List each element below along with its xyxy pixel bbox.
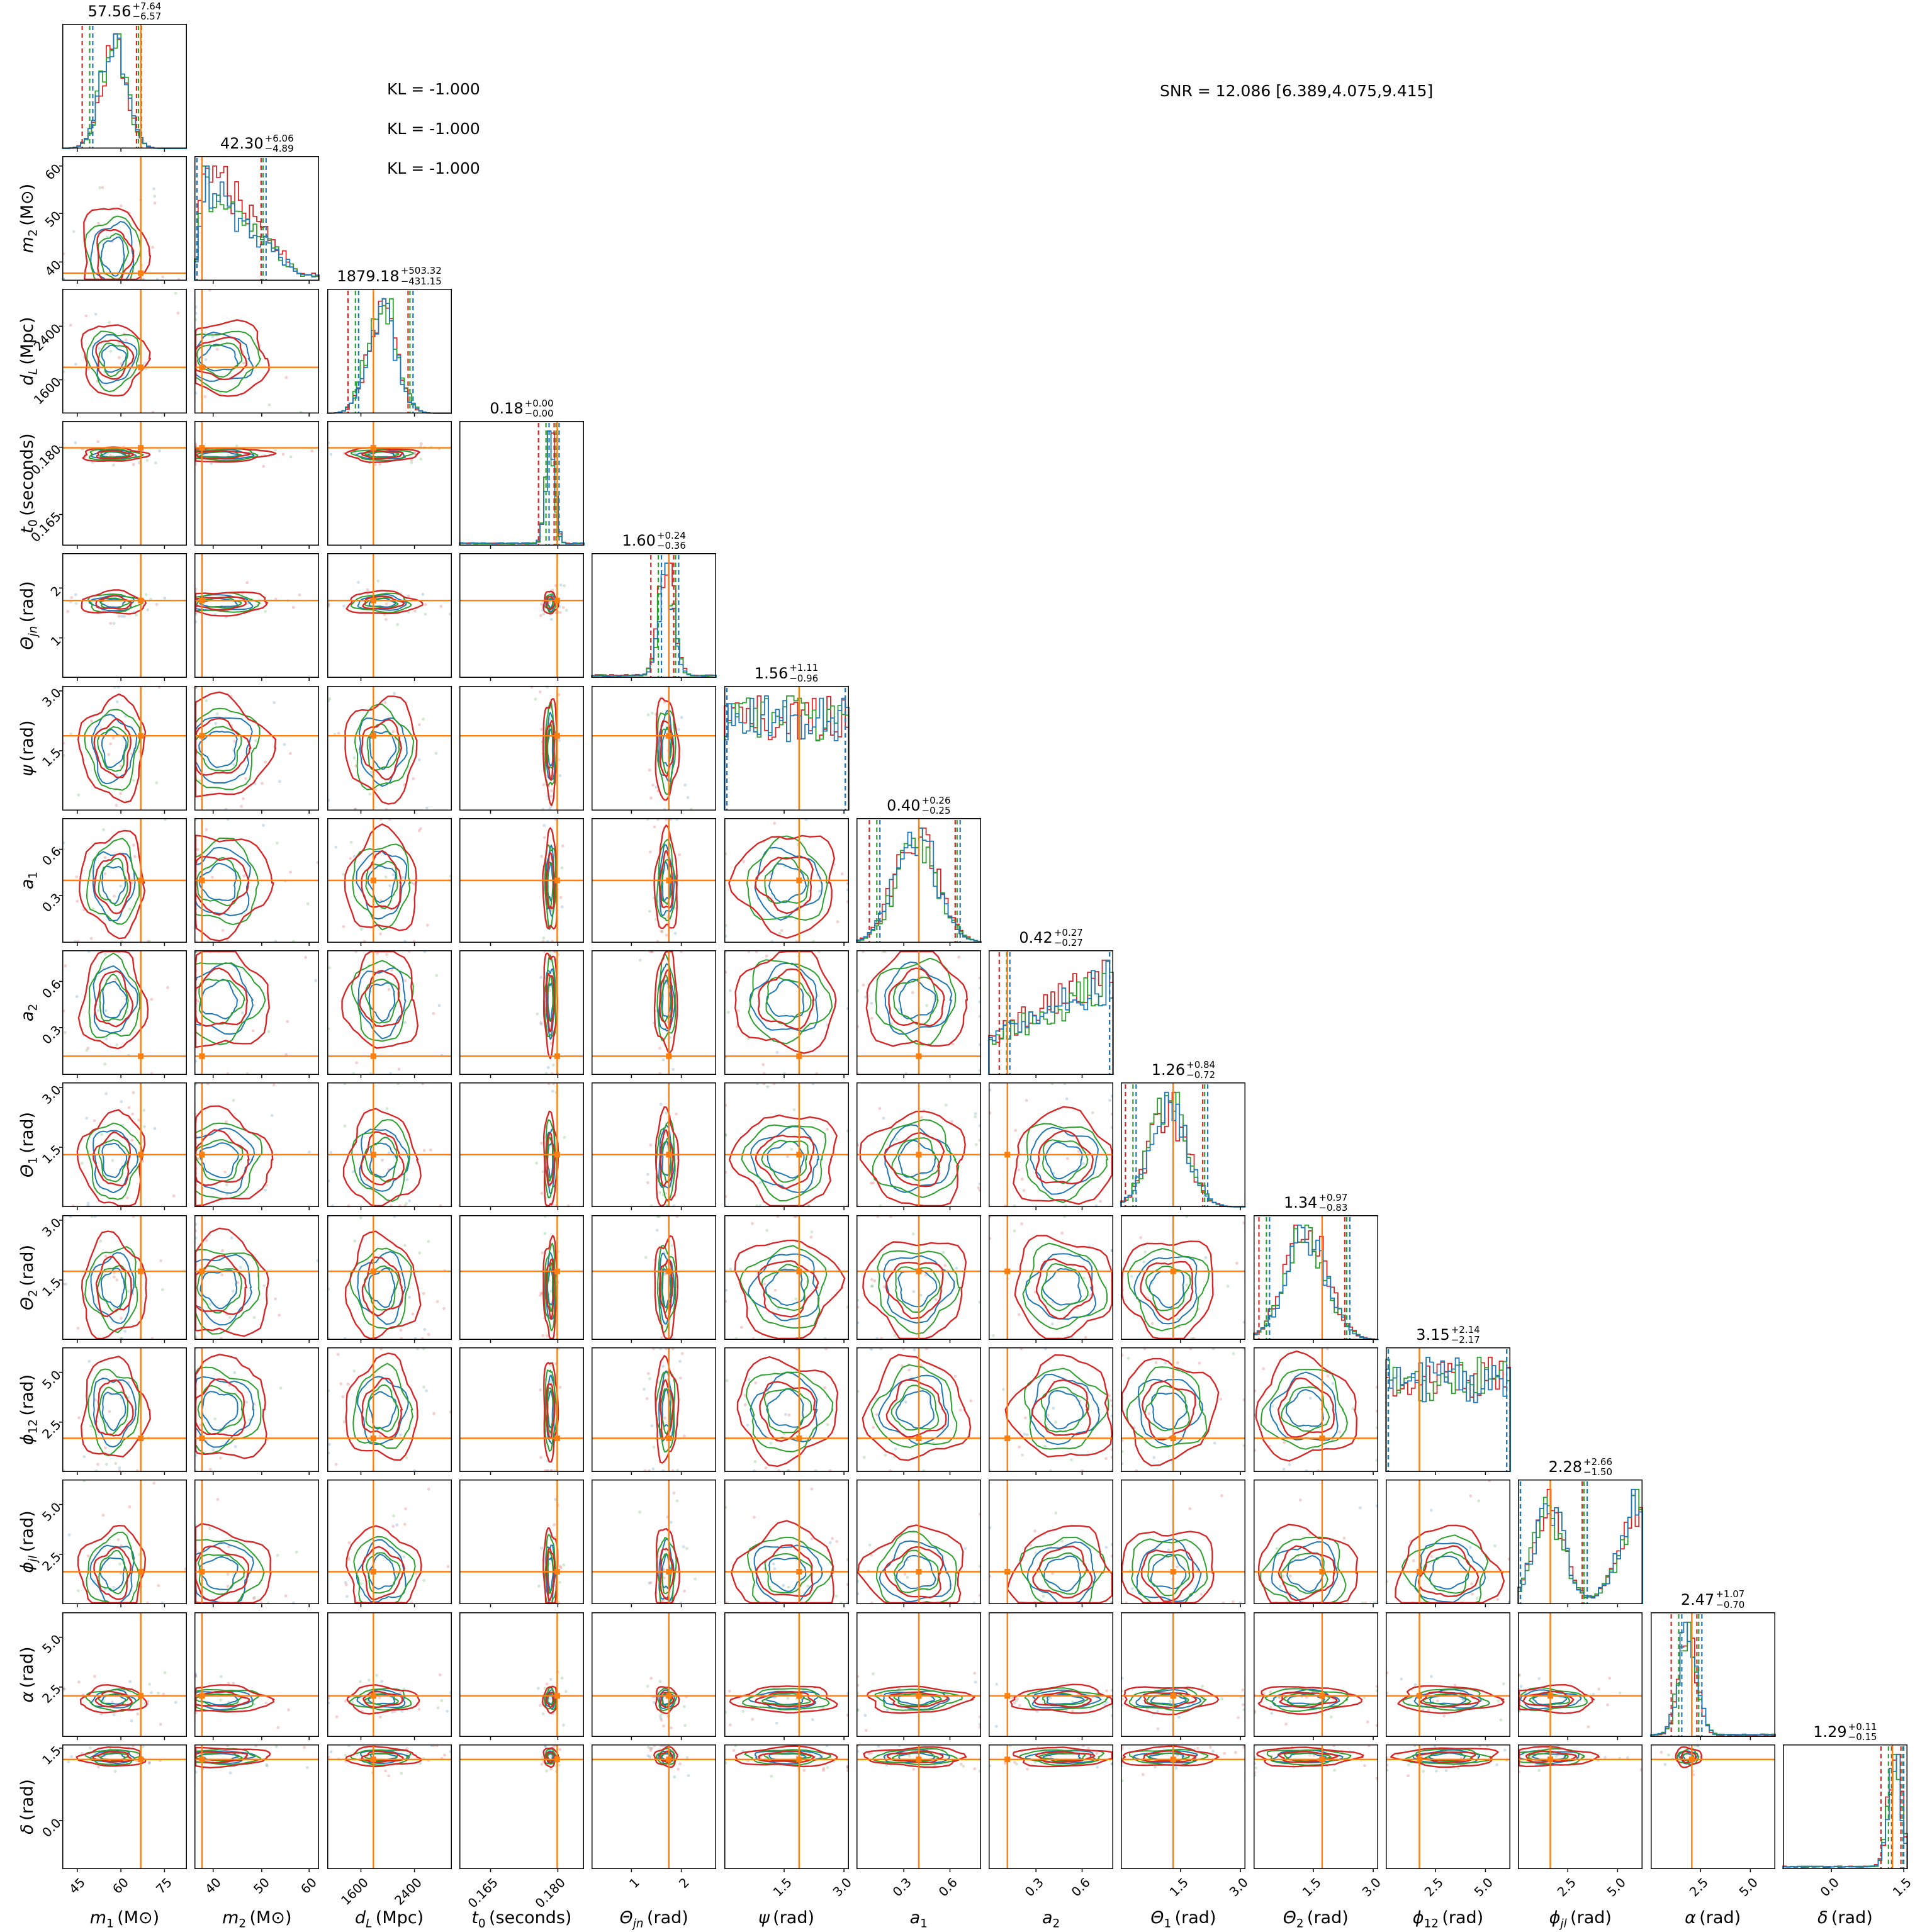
diag-panel-alpha bbox=[1651, 1612, 1775, 1737]
panel-theta_2-vs-m1 bbox=[62, 1215, 187, 1340]
panel-a2-vs-dL bbox=[327, 950, 452, 1075]
panel-alpha-vs-m1 bbox=[62, 1612, 187, 1737]
panel-phi_jl-vs-dL bbox=[327, 1480, 452, 1604]
panel-phi_12-vs-theta_1 bbox=[1121, 1347, 1245, 1472]
panel-psi-vs-dL bbox=[327, 686, 452, 811]
diag-title-phi_jl: 2.28+2.66−1.50 bbox=[1493, 1454, 1668, 1478]
panel-delta-vs-dL bbox=[327, 1744, 452, 1869]
panel-phi_12-vs-a1 bbox=[856, 1347, 981, 1472]
panel-theta_2-vs-theta_jn bbox=[592, 1215, 716, 1340]
panel-delta-vs-m2 bbox=[194, 1744, 319, 1869]
panel-theta_jn-vs-dL bbox=[327, 553, 452, 678]
panel-t0-vs-dL bbox=[327, 421, 452, 546]
panel-t0-vs-m2 bbox=[194, 421, 319, 546]
panel-alpha-vs-t0 bbox=[459, 1612, 584, 1737]
panel-theta_1-vs-a1 bbox=[856, 1082, 981, 1207]
y-axis-label-m2: m2 (M⊙) bbox=[17, 155, 38, 281]
panel-alpha-vs-a2 bbox=[989, 1612, 1113, 1737]
panel-theta_1-vs-theta_jn bbox=[592, 1082, 716, 1207]
panel-phi_jl-vs-a1 bbox=[856, 1480, 981, 1604]
panel-delta-vs-m1 bbox=[62, 1744, 187, 1869]
panel-alpha-vs-psi bbox=[724, 1612, 849, 1737]
panel-phi_jl-vs-a2 bbox=[989, 1480, 1113, 1604]
panel-theta_1-vs-m2 bbox=[194, 1082, 319, 1207]
diag-title-psi: 1.56+1.11−0.96 bbox=[699, 661, 874, 685]
y-axis-label-phi_12: ϕ12 (rad) bbox=[17, 1347, 38, 1473]
diag-panel-a2 bbox=[989, 950, 1113, 1075]
panel-alpha-vs-dL bbox=[327, 1612, 452, 1737]
panel-theta_2-vs-a1 bbox=[856, 1215, 981, 1340]
panel-theta_jn-vs-t0 bbox=[459, 553, 584, 678]
panel-alpha-vs-a1 bbox=[856, 1612, 981, 1737]
panel-phi_12-vs-m1 bbox=[62, 1347, 187, 1472]
panel-delta-vs-theta_2 bbox=[1254, 1744, 1378, 1869]
panel-dL-vs-m1 bbox=[62, 289, 187, 413]
panel-phi_jl-vs-m2 bbox=[194, 1480, 319, 1604]
panel-theta_jn-vs-m2 bbox=[194, 553, 319, 678]
panel-a2-vs-m2 bbox=[194, 950, 319, 1075]
panel-a1-vs-m2 bbox=[194, 818, 319, 943]
panel-theta_1-vs-dL bbox=[327, 1082, 452, 1207]
panel-m2-vs-m1 bbox=[62, 156, 187, 281]
panel-theta_2-vs-psi bbox=[724, 1215, 849, 1340]
diag-panel-theta_2 bbox=[1254, 1215, 1378, 1340]
panel-phi_jl-vs-theta_1 bbox=[1121, 1480, 1245, 1604]
panel-theta_1-vs-t0 bbox=[459, 1082, 584, 1207]
panel-phi_12-vs-theta_2 bbox=[1254, 1347, 1378, 1472]
panel-a1-vs-theta_jn bbox=[592, 818, 716, 943]
y-axis-label-theta_2: Θ2 (rad) bbox=[17, 1215, 38, 1340]
panel-a1-vs-dL bbox=[327, 818, 452, 943]
kl-annotation-2: KL = -1.000 bbox=[387, 120, 480, 138]
panel-phi_12-vs-a2 bbox=[989, 1347, 1113, 1472]
diag-title-theta_2: 1.34+0.97−0.83 bbox=[1228, 1190, 1403, 1214]
panel-phi_12-vs-dL bbox=[327, 1347, 452, 1472]
panel-alpha-vs-m2 bbox=[194, 1612, 319, 1737]
panel-t0-vs-m1 bbox=[62, 421, 187, 546]
diag-title-theta_1: 1.26+0.84−0.72 bbox=[1096, 1057, 1271, 1081]
panel-psi-vs-m2 bbox=[194, 686, 319, 811]
diag-panel-a1 bbox=[856, 818, 981, 943]
diag-title-a1: 0.40+0.26−0.25 bbox=[831, 793, 1006, 817]
y-axis-label-a2: a2 bbox=[17, 950, 38, 1076]
diag-panel-delta bbox=[1783, 1744, 1907, 1869]
panel-phi_12-vs-m2 bbox=[194, 1347, 319, 1472]
kl-annotation-3: KL = -1.000 bbox=[387, 159, 480, 177]
diag-title-dL: 1879.18+503.32−431.15 bbox=[302, 264, 477, 288]
panel-phi_jl-vs-theta_jn bbox=[592, 1480, 716, 1604]
panel-delta-vs-a1 bbox=[856, 1744, 981, 1869]
panel-delta-vs-theta_1 bbox=[1121, 1744, 1245, 1869]
panel-phi_jl-vs-m1 bbox=[62, 1480, 187, 1604]
panel-alpha-vs-theta_1 bbox=[1121, 1612, 1245, 1737]
y-axis-label-theta_1: Θ1 (rad) bbox=[17, 1082, 38, 1208]
diag-panel-phi_12 bbox=[1386, 1347, 1510, 1472]
panel-delta-vs-t0 bbox=[459, 1744, 584, 1869]
diag-panel-t0 bbox=[459, 421, 584, 546]
diag-panel-m1 bbox=[62, 24, 187, 149]
diag-panel-theta_1 bbox=[1121, 1082, 1245, 1207]
y-axis-label-a1: a1 bbox=[17, 817, 38, 943]
snr-annotation: SNR = 12.086 [6.389,4.075,9.415] bbox=[1160, 82, 1433, 100]
panel-theta_2-vs-m2 bbox=[194, 1215, 319, 1340]
panel-a1-vs-t0 bbox=[459, 818, 584, 943]
diag-title-alpha: 2.47+1.07−0.70 bbox=[1626, 1587, 1800, 1611]
panel-phi_jl-vs-phi_12 bbox=[1386, 1480, 1510, 1604]
panel-a1-vs-m1 bbox=[62, 818, 187, 943]
panel-theta_2-vs-t0 bbox=[459, 1215, 584, 1340]
panel-psi-vs-t0 bbox=[459, 686, 584, 811]
diag-panel-theta_jn bbox=[592, 553, 716, 678]
panel-alpha-vs-theta_jn bbox=[592, 1612, 716, 1737]
panel-phi_jl-vs-t0 bbox=[459, 1480, 584, 1604]
panel-phi_jl-vs-theta_2 bbox=[1254, 1480, 1378, 1604]
panel-delta-vs-alpha bbox=[1651, 1744, 1775, 1869]
panel-theta_2-vs-theta_1 bbox=[1121, 1215, 1245, 1340]
panel-alpha-vs-theta_2 bbox=[1254, 1612, 1378, 1737]
panel-phi_12-vs-t0 bbox=[459, 1347, 584, 1472]
diag-title-t0: 0.18+0.00−0.00 bbox=[434, 396, 609, 420]
y-axis-label-dL: dL (Mpc) bbox=[17, 288, 38, 414]
diag-title-m2: 42.30+6.06−4.89 bbox=[169, 131, 344, 155]
panel-a2-vs-psi bbox=[724, 950, 849, 1075]
panel-delta-vs-phi_12 bbox=[1386, 1744, 1510, 1869]
diag-title-theta_jn: 1.60+0.24−0.36 bbox=[566, 528, 741, 552]
y-axis-label-t0: t0 (seconds) bbox=[17, 420, 38, 546]
panel-delta-vs-phi_jl bbox=[1518, 1744, 1643, 1869]
kl-annotation-1: KL = -1.000 bbox=[387, 80, 480, 98]
panel-delta-vs-theta_jn bbox=[592, 1744, 716, 1869]
panel-phi_12-vs-psi bbox=[724, 1347, 849, 1472]
diag-panel-psi bbox=[724, 686, 849, 811]
panel-a2-vs-theta_jn bbox=[592, 950, 716, 1075]
y-axis-label-psi: ψ (rad) bbox=[17, 685, 38, 811]
diag-panel-m2 bbox=[194, 156, 319, 281]
panel-delta-vs-a2 bbox=[989, 1744, 1113, 1869]
panel-theta_jn-vs-m1 bbox=[62, 553, 187, 678]
panel-phi_jl-vs-psi bbox=[724, 1480, 849, 1604]
panel-alpha-vs-phi_12 bbox=[1386, 1612, 1510, 1737]
diag-title-a2: 0.42+0.27−0.27 bbox=[963, 925, 1138, 949]
panel-phi_12-vs-theta_jn bbox=[592, 1347, 716, 1472]
diag-panel-dL bbox=[327, 289, 452, 413]
diag-panel-phi_jl bbox=[1518, 1480, 1643, 1604]
panel-theta_2-vs-dL bbox=[327, 1215, 452, 1340]
panel-theta_1-vs-psi bbox=[724, 1082, 849, 1207]
panel-dL-vs-m2 bbox=[194, 289, 319, 413]
panel-theta_1-vs-m1 bbox=[62, 1082, 187, 1207]
panel-a2-vs-t0 bbox=[459, 950, 584, 1075]
diag-title-m1: 57.56+7.64−6.57 bbox=[37, 0, 212, 23]
y-axis-label-phi_jl: ϕjl (rad) bbox=[17, 1479, 38, 1605]
y-axis-label-alpha: α (rad) bbox=[17, 1612, 38, 1738]
panel-a1-vs-psi bbox=[724, 818, 849, 943]
corner-plot-figure: KL = -1.000 KL = -1.000 KL = -1.000 SNR … bbox=[0, 0, 1932, 1932]
y-axis-label-delta: δ (rad) bbox=[17, 1744, 38, 1870]
diag-title-delta: 1.29+0.11−0.15 bbox=[1758, 1719, 1932, 1743]
panel-psi-vs-theta_jn bbox=[592, 686, 716, 811]
diag-title-phi_12: 3.15+2.14−2.17 bbox=[1361, 1322, 1536, 1346]
panel-theta_1-vs-a2 bbox=[989, 1082, 1113, 1207]
panel-a2-vs-a1 bbox=[856, 950, 981, 1075]
y-axis-label-theta_jn: Θjn (rad) bbox=[17, 553, 38, 678]
panel-alpha-vs-phi_jl bbox=[1518, 1612, 1643, 1737]
panel-delta-vs-psi bbox=[724, 1744, 849, 1869]
panel-a2-vs-m1 bbox=[62, 950, 187, 1075]
x-axis-label-delta: δ (rad) bbox=[1764, 1908, 1926, 1928]
panel-psi-vs-m1 bbox=[62, 686, 187, 811]
panel-theta_2-vs-a2 bbox=[989, 1215, 1113, 1340]
